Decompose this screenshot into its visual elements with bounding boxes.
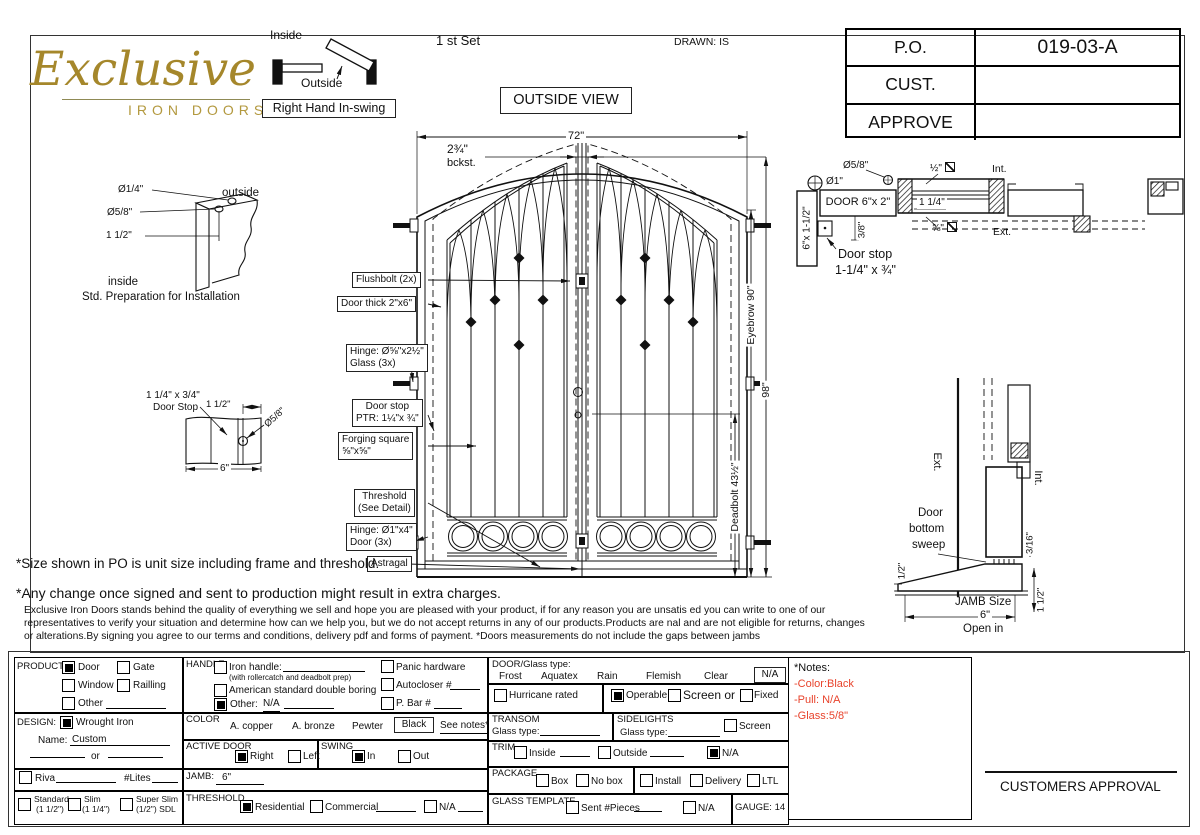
stopdetail-name: Door Stop	[153, 402, 198, 414]
sill-sweep-3: sweep	[912, 539, 945, 553]
hurricane-label: Hurricane rated	[509, 690, 578, 702]
sent-pieces-label: Sent #Pieces	[581, 803, 640, 815]
stopdetail-width: 6"	[218, 463, 231, 475]
riva-checkbox[interactable]	[19, 771, 32, 784]
template-na-label: N/A	[698, 803, 715, 815]
head-glass-58: ⅝"	[932, 222, 957, 235]
head-exterior: Ext.	[993, 226, 1011, 238]
handle-other-checkbox[interactable]	[214, 698, 227, 711]
template-na-checkbox[interactable]	[683, 801, 696, 814]
autocloser-label: Autocloser #	[396, 680, 452, 692]
package-label: PACKAGE	[492, 768, 537, 779]
threshold-residential-checkbox[interactable]	[240, 800, 253, 813]
handle-other-value[interactable]: N/A	[263, 698, 280, 712]
notes-title: *Notes:	[794, 662, 830, 675]
disclaimer-body1: Exclusive Iron Doors stands behind the q…	[24, 605, 825, 617]
trim-inside-checkbox[interactable]	[514, 746, 527, 759]
logo-script: Exclusive	[30, 42, 256, 97]
sidelights-label: SIDELIGHTS	[617, 714, 674, 725]
sidelights-screen-checkbox[interactable]	[724, 719, 737, 732]
threshold-residential-label: Residential	[255, 802, 304, 814]
swing-in-checkbox[interactable]	[352, 750, 365, 763]
panic-label: Panic hardware	[396, 662, 465, 674]
stopdetail-size: 1 1/4" x 3/4"	[146, 390, 200, 402]
dim-deadbolt: Deadbolt 43½"	[729, 460, 741, 533]
label-door-thick: Door thick 2"x6"	[337, 296, 416, 312]
autocloser-blank[interactable]	[450, 689, 480, 690]
head-jamb-size: 6"x 1-1/2"	[802, 204, 813, 251]
label-hinge-glass: Hinge: Ø⅝"x2½" Glass (3x)	[346, 344, 428, 372]
approval-label: CUSTOMERS APPROVAL	[1000, 779, 1161, 795]
swing-label: SWING	[321, 741, 353, 752]
trim-outside-checkbox[interactable]	[598, 746, 611, 759]
slim-checkbox[interactable]	[68, 798, 81, 811]
install-checkbox[interactable]	[640, 774, 653, 787]
sill-dim-316: 3/16"	[1025, 530, 1036, 556]
handle-iron-blank[interactable]	[283, 671, 365, 672]
dim-height: 98"	[760, 380, 772, 399]
product-other-label: Other	[78, 698, 103, 710]
door-stop-detail	[186, 404, 264, 472]
handle-other-label: Other:	[230, 699, 258, 711]
transom-glass-blank[interactable]	[540, 735, 600, 736]
product-other-checkbox[interactable]	[62, 697, 75, 710]
swing-out-checkbox[interactable]	[398, 750, 411, 763]
head-stop-1: Door stop	[838, 247, 892, 262]
standard-label: Standard	[34, 794, 69, 804]
color-copper[interactable]: A. copper	[230, 721, 273, 733]
hurricane-checkbox[interactable]	[494, 689, 507, 702]
stdprep-dia-58: Ø5/8"	[107, 207, 132, 219]
screen-or-checkbox[interactable]	[668, 689, 681, 702]
autocloser-checkbox[interactable]	[381, 678, 394, 691]
active-left-checkbox[interactable]	[288, 750, 301, 763]
handle-iron-sub: (with rollercatch and deadbolt prep)	[229, 673, 351, 682]
glass-rain[interactable]: Rain	[597, 671, 618, 683]
glass-na-selected[interactable]: N/A	[754, 667, 786, 683]
lites-label: #Lites	[124, 773, 151, 785]
glass-aquatex[interactable]: Aquatex	[541, 671, 578, 683]
sill-sweep-2: bottom	[909, 523, 944, 537]
riva-label: Riva	[35, 773, 55, 785]
ltl-checkbox[interactable]	[747, 774, 760, 787]
label-door-stop: Door stop PTR: 1¼"x ¾"	[352, 399, 423, 427]
head-interior: Int.	[992, 163, 1007, 175]
screen-or-label: Screen or	[683, 688, 735, 702]
design-wrought-label: Wrought Iron	[76, 717, 134, 729]
sent-pieces-checkbox[interactable]	[566, 801, 579, 814]
glass-symbol-icon	[947, 222, 957, 232]
label-hinge-door: Hinge: Ø1"x4" Door (3x)	[346, 523, 417, 551]
delivery-label: Delivery	[705, 776, 741, 788]
product-gate-checkbox[interactable]	[117, 661, 130, 674]
color-see-notes[interactable]: See notes*	[440, 720, 489, 734]
pbar-checkbox[interactable]	[381, 697, 394, 710]
disclaimer-body3: or alterations.By signing you agree to o…	[24, 631, 760, 643]
operable-checkbox[interactable]	[611, 689, 624, 702]
product-window-checkbox[interactable]	[62, 679, 75, 692]
swing-out-label: Out	[413, 751, 429, 763]
standard-size: (1 1/2")	[36, 804, 64, 814]
cust-label: CUST.	[847, 67, 976, 102]
product-other-blank[interactable]	[106, 708, 166, 709]
package-nobox-label: No box	[591, 776, 623, 788]
super-slim-label: Super Slim	[136, 794, 178, 804]
jamb-label: JAMB:	[186, 771, 214, 782]
stopdetail-one-half: 1 1/2"	[206, 399, 231, 410]
super-slim-checkbox[interactable]	[120, 798, 133, 811]
slim-label: Slim	[84, 794, 101, 804]
swing-outside-label: Outside	[301, 76, 342, 90]
po-value: 019-03-A	[976, 30, 1179, 65]
install-label: Install	[655, 776, 681, 788]
handle-american-checkbox[interactable]	[214, 684, 227, 697]
sill-section	[894, 378, 1034, 622]
stdprep-caption: Std. Preparation for Installation	[82, 291, 240, 305]
trim-inside-blank[interactable]	[560, 756, 590, 757]
sill-exterior: Ext.	[931, 451, 943, 474]
approve-label: APPROVE	[847, 105, 976, 140]
stdprep-inside: inside	[108, 276, 138, 290]
super-slim-size: (1/2") SDL	[136, 804, 176, 814]
handle-iron-checkbox[interactable]	[214, 661, 227, 674]
lites-blank[interactable]	[152, 782, 178, 783]
product-gate-label: Gate	[133, 662, 155, 674]
dim-backset: 2¾"	[447, 142, 468, 156]
label-forging: Forging square ⅝"x⅝"	[338, 432, 413, 460]
dim-eyebrow: Eyebrow 90"	[745, 283, 757, 346]
approve-value[interactable]	[976, 105, 1179, 140]
product-door-label: Door	[78, 662, 100, 674]
stdprep-one-half: 1 1/2"	[106, 230, 132, 242]
sill-interior: Int.	[1032, 468, 1044, 487]
product-railing-label: Railling	[133, 680, 166, 692]
glass-type-label: DOOR/Glass type:	[492, 659, 571, 670]
note-color: -Color:Black	[794, 678, 854, 691]
product-railing-checkbox[interactable]	[117, 679, 130, 692]
trim-na-label: N/A	[722, 748, 739, 760]
swing-type-label: Right Hand In-swing	[262, 99, 396, 118]
delivery-checkbox[interactable]	[690, 774, 703, 787]
disclaimer-body2: representatives to verify your situation…	[24, 618, 865, 630]
swing-inside-label: Inside	[270, 28, 302, 42]
pbar-blank[interactable]	[434, 708, 462, 709]
design-or-dash-right	[108, 757, 163, 758]
color-pewter[interactable]: Pewter	[352, 721, 383, 733]
active-left-label: Left	[303, 751, 320, 763]
sidelights-glass-label: Glass type:	[620, 727, 668, 738]
glass-template-label: GLASS TEMPLATE	[492, 796, 576, 807]
drawn-label: DRAWN: IS	[674, 36, 729, 48]
door-elevation	[393, 133, 771, 577]
dim-backset-sub: bckst.	[447, 157, 476, 170]
swing-in-label: In	[367, 751, 375, 763]
design-or-dash-left	[30, 757, 85, 758]
design-or-label: or	[91, 751, 100, 763]
gauge-label: GAUGE: 14	[735, 802, 785, 813]
slim-size: (1 1/4")	[82, 804, 110, 814]
sent-pieces-blank[interactable]	[634, 811, 662, 812]
label-flushbolt: Flushbolt (2x)	[352, 272, 421, 288]
head-dim-114: 1 1/4"	[917, 197, 947, 209]
design-name-label: Name:	[38, 735, 67, 747]
head-dim-38: 3/8"	[857, 220, 868, 241]
threshold-label: THRESHOLD	[186, 793, 245, 804]
po-label: P.O.	[847, 30, 976, 65]
handle-other-blank[interactable]	[284, 708, 334, 709]
label-threshold: Threshold (See Detail)	[354, 489, 415, 517]
sill-dim-half: 1/2"	[897, 561, 908, 582]
trim-outside-blank[interactable]	[650, 756, 684, 757]
transom-glass-label: Glass type:	[492, 726, 540, 737]
trim-label: TRIM	[492, 742, 515, 753]
package-box-label: Box	[551, 776, 568, 788]
note-glass: -Glass:5/8"	[794, 710, 848, 723]
approval-signature-line[interactable]	[985, 771, 1177, 773]
view-label: OUTSIDE VIEW	[500, 87, 632, 114]
threshold-na-label: N/A	[439, 802, 456, 814]
sill-sweep-1: Door	[918, 507, 943, 521]
head-glass-half: ½"	[930, 162, 955, 175]
fixed-label: Fixed	[754, 690, 778, 702]
threshold-na-checkbox[interactable]	[424, 800, 437, 813]
product-window-label: Window	[78, 680, 114, 692]
sill-jamb-value: 6"	[978, 609, 992, 622]
fixed-checkbox[interactable]	[740, 689, 753, 702]
head-dia-one: Ø1"	[826, 176, 843, 188]
sill-jamb-label: JAMB Size	[955, 596, 1011, 610]
glass-flemish[interactable]: Flemish	[646, 671, 681, 683]
note-pull: -Pull: N/A	[794, 694, 840, 707]
disclaimer-line2: *Any change once signed and sent to prod…	[16, 585, 501, 602]
head-stop-2: 1-1/4" x ¾"	[835, 263, 896, 278]
set-label: 1 st Set	[436, 33, 480, 48]
head-door-size: DOOR 6"x 2"	[822, 196, 894, 209]
head-dia-58: Ø5/8"	[843, 160, 868, 172]
panic-checkbox[interactable]	[381, 660, 394, 673]
ltl-label: LTL	[762, 776, 779, 788]
std-prep-detail	[140, 190, 257, 291]
glass-frost[interactable]: Frost	[499, 671, 522, 683]
po-table: P.O. 019-03-A CUST. APPROVE	[845, 28, 1181, 138]
stdprep-dia-quarter: Ø1/4"	[118, 184, 143, 196]
color-black-selected[interactable]: Black	[394, 717, 434, 733]
logo-subtitle: IRON DOORS	[128, 102, 268, 119]
product-door-checkbox[interactable]	[62, 661, 75, 674]
trim-inside-label: Inside	[529, 748, 556, 760]
glass-symbol-icon	[945, 162, 955, 172]
dim-width: 72"	[566, 130, 586, 143]
disclaimer-line1: *Size shown in PO is unit size including…	[16, 556, 379, 572]
design-wrought-checkbox[interactable]	[60, 716, 73, 729]
package-nobox-checkbox[interactable]	[576, 774, 589, 787]
jamb-value[interactable]: 6"	[222, 772, 231, 784]
sidelights-screen-label: Screen	[739, 721, 771, 733]
door-spec-sheet: Exclusive IRON DOORS Inside Outside Righ…	[0, 0, 1200, 835]
threshold-na-blank[interactable]	[458, 811, 483, 812]
active-right-checkbox[interactable]	[235, 750, 248, 763]
cust-value[interactable]	[976, 67, 1179, 102]
threshold-commercial-checkbox[interactable]	[310, 800, 323, 813]
standard-checkbox[interactable]	[18, 798, 31, 811]
handle-american-label: American standard double boring	[229, 685, 376, 697]
pbar-label: P. Bar #	[396, 698, 431, 710]
jamb-blank[interactable]	[216, 784, 264, 785]
trim-outside-label: Outside	[613, 748, 647, 760]
sill-dim-112: 1 1/2"	[1036, 586, 1047, 615]
color-label: COLOR	[186, 714, 220, 725]
riva-blank[interactable]	[56, 782, 116, 783]
product-label: PRODUCT:	[17, 661, 66, 672]
design-name-blank[interactable]	[70, 745, 170, 746]
logo-underline	[62, 99, 250, 100]
active-right-label: Right	[250, 751, 273, 763]
threshold-commercial-label: Commercial	[325, 802, 378, 814]
sidelights-glass-blank[interactable]	[668, 736, 720, 737]
threshold-commercial-blank[interactable]	[376, 811, 416, 812]
color-bronze[interactable]: A. bronze	[292, 721, 335, 733]
sill-open-label: Open in	[963, 623, 1003, 637]
glass-clear[interactable]: Clear	[704, 671, 728, 683]
operable-label: Operable	[626, 690, 667, 702]
transom-label: TRANSOM	[492, 714, 540, 725]
trim-na-checkbox[interactable]	[707, 746, 720, 759]
stdprep-outside: outside	[222, 187, 259, 201]
design-label: DESIGN:	[17, 717, 56, 728]
package-box-checkbox[interactable]	[536, 774, 549, 787]
